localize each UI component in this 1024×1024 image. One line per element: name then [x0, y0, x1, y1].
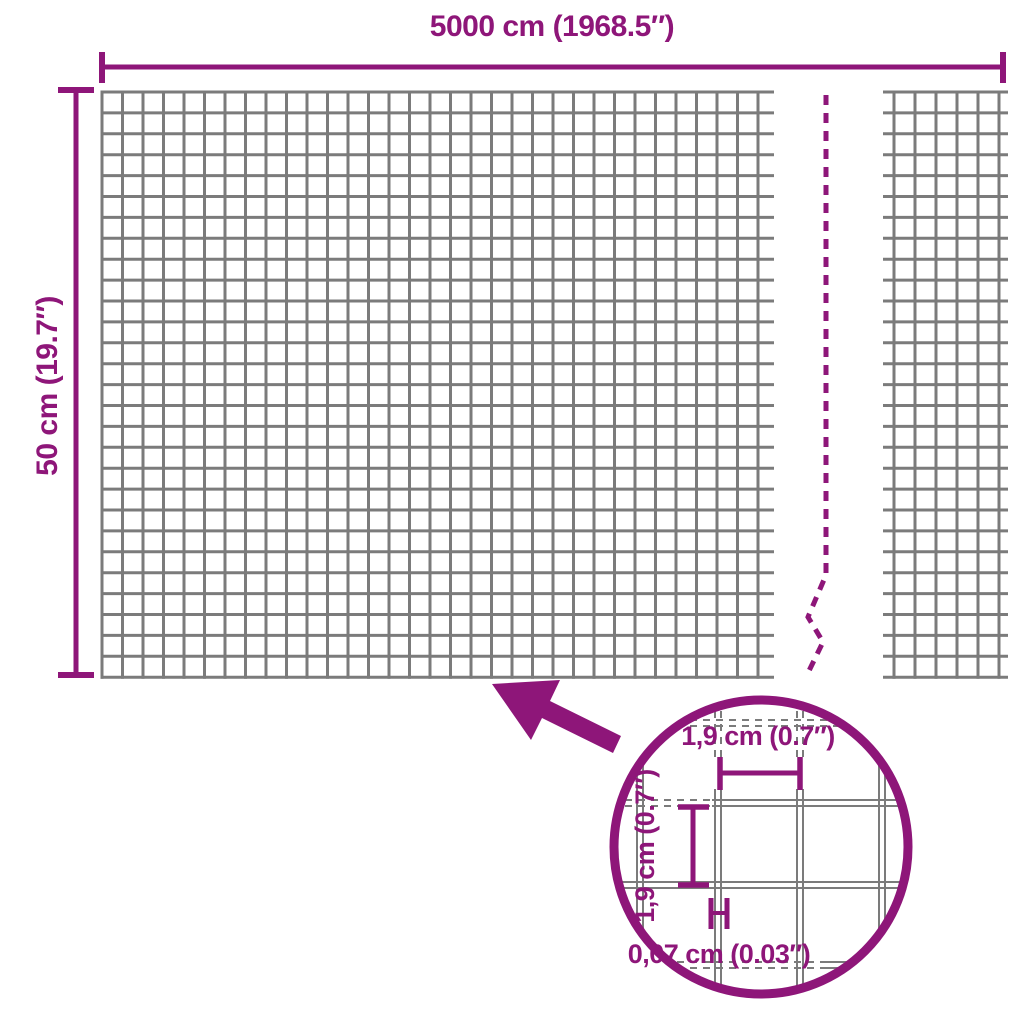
width-dimension: 5000 cm (1968.5″) — [102, 10, 1003, 83]
detail-cell-width-dimension — [720, 757, 800, 790]
roll-break-dashed-line — [806, 95, 826, 677]
detail-wire-thickness-marker — [711, 898, 727, 929]
height-dimension: 50 cm (19.7″) — [31, 90, 94, 675]
zoom-arrow-icon — [492, 680, 621, 753]
detail-cell-height-label: 1,9 cm (0.7″) — [630, 769, 660, 923]
width-dimension-label: 5000 cm (1968.5″) — [430, 10, 674, 43]
product-diagram: 5000 cm (1968.5″) 50 cm (19.7″) 1,9 cm (… — [0, 0, 1024, 1024]
height-dimension-label: 50 cm (19.7″) — [31, 296, 64, 476]
detail-wire-thickness-label: 0,07 cm (0.03″) — [628, 939, 811, 969]
detail-cell-height-dimension — [678, 807, 709, 885]
mesh-panel-main — [101, 91, 775, 679]
detail-cell-width-label: 1,9 cm (0.7″) — [681, 721, 835, 751]
mesh-panel-continuation — [883, 91, 1008, 679]
